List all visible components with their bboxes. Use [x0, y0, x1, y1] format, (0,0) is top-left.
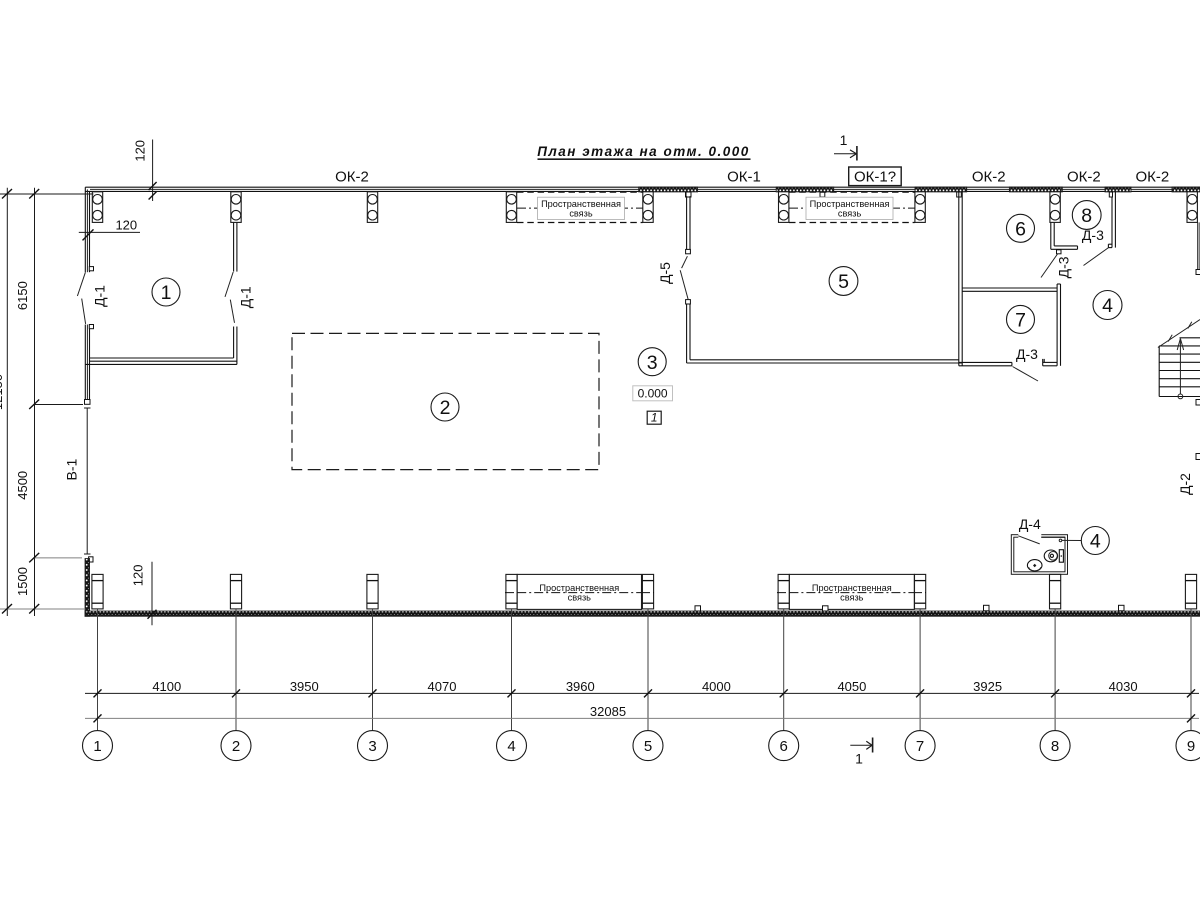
svg-text:Д-3: Д-3	[1055, 256, 1071, 278]
svg-text:4: 4	[1102, 295, 1113, 317]
svg-text:2: 2	[232, 738, 240, 755]
svg-text:1: 1	[855, 751, 863, 767]
svg-text:План этажа на отм. 0.000: План этажа на отм. 0.000	[537, 144, 750, 159]
svg-text:Пространственная: Пространственная	[810, 199, 890, 209]
svg-text:4070: 4070	[428, 679, 457, 694]
svg-text:ОК-2: ОК-2	[972, 169, 1006, 186]
svg-text:ОК-2: ОК-2	[1136, 169, 1170, 186]
svg-text:4: 4	[507, 738, 515, 755]
svg-text:7: 7	[1015, 310, 1026, 332]
svg-text:Д-1: Д-1	[238, 286, 254, 308]
svg-text:7: 7	[916, 738, 924, 755]
svg-text:В-1: В-1	[64, 458, 80, 480]
svg-text:1: 1	[840, 132, 848, 148]
svg-text:9: 9	[1187, 738, 1195, 755]
svg-text:Д-5: Д-5	[657, 262, 673, 284]
svg-text:120: 120	[133, 140, 148, 162]
svg-text:связь: связь	[569, 209, 593, 219]
svg-text:6: 6	[780, 738, 788, 755]
svg-text:32085: 32085	[590, 704, 626, 719]
svg-text:4030: 4030	[1109, 679, 1138, 694]
svg-text:1: 1	[651, 411, 658, 425]
svg-text:ОК-2: ОК-2	[1067, 169, 1101, 186]
svg-text:1: 1	[93, 738, 101, 755]
svg-text:Пространственная: Пространственная	[539, 583, 619, 593]
svg-text:0.000: 0.000	[638, 387, 668, 401]
svg-text:Пространственная: Пространственная	[541, 199, 621, 209]
svg-text:8: 8	[1081, 205, 1092, 227]
svg-text:Д-1: Д-1	[92, 285, 108, 307]
svg-text:связь: связь	[840, 593, 864, 603]
svg-text:2: 2	[440, 397, 451, 419]
svg-text:связь: связь	[838, 209, 862, 219]
svg-text:ОК-1: ОК-1	[727, 169, 761, 186]
svg-text:Д-3: Д-3	[1016, 346, 1038, 362]
svg-text:12150: 12150	[0, 374, 5, 410]
svg-text:6: 6	[1015, 219, 1026, 241]
svg-text:1: 1	[161, 282, 172, 304]
svg-text:5: 5	[644, 738, 652, 755]
svg-text:3950: 3950	[290, 679, 319, 694]
svg-text:8: 8	[1051, 738, 1059, 755]
svg-text:Д-2: Д-2	[1177, 473, 1193, 495]
svg-text:1500: 1500	[15, 567, 30, 596]
svg-text:связь: связь	[568, 593, 592, 603]
svg-text:4100: 4100	[152, 679, 181, 694]
svg-text:3925: 3925	[973, 679, 1002, 694]
svg-text:6150: 6150	[15, 281, 30, 310]
svg-text:4050: 4050	[837, 679, 866, 694]
svg-text:Пространственная: Пространственная	[812, 583, 892, 593]
svg-text:120: 120	[130, 565, 145, 587]
svg-text:3: 3	[647, 352, 658, 374]
svg-text:4: 4	[1090, 531, 1101, 553]
svg-text:Д-4: Д-4	[1019, 516, 1041, 532]
svg-text:ОК-2: ОК-2	[335, 169, 369, 186]
svg-text:3: 3	[368, 738, 376, 755]
svg-text:Д-3: Д-3	[1082, 227, 1104, 243]
svg-text:5: 5	[838, 271, 849, 293]
svg-text:4000: 4000	[702, 679, 731, 694]
svg-text:120: 120	[115, 217, 137, 232]
svg-text:ОК-1?: ОК-1?	[854, 169, 896, 186]
svg-text:4500: 4500	[15, 471, 30, 500]
svg-text:3960: 3960	[566, 679, 595, 694]
